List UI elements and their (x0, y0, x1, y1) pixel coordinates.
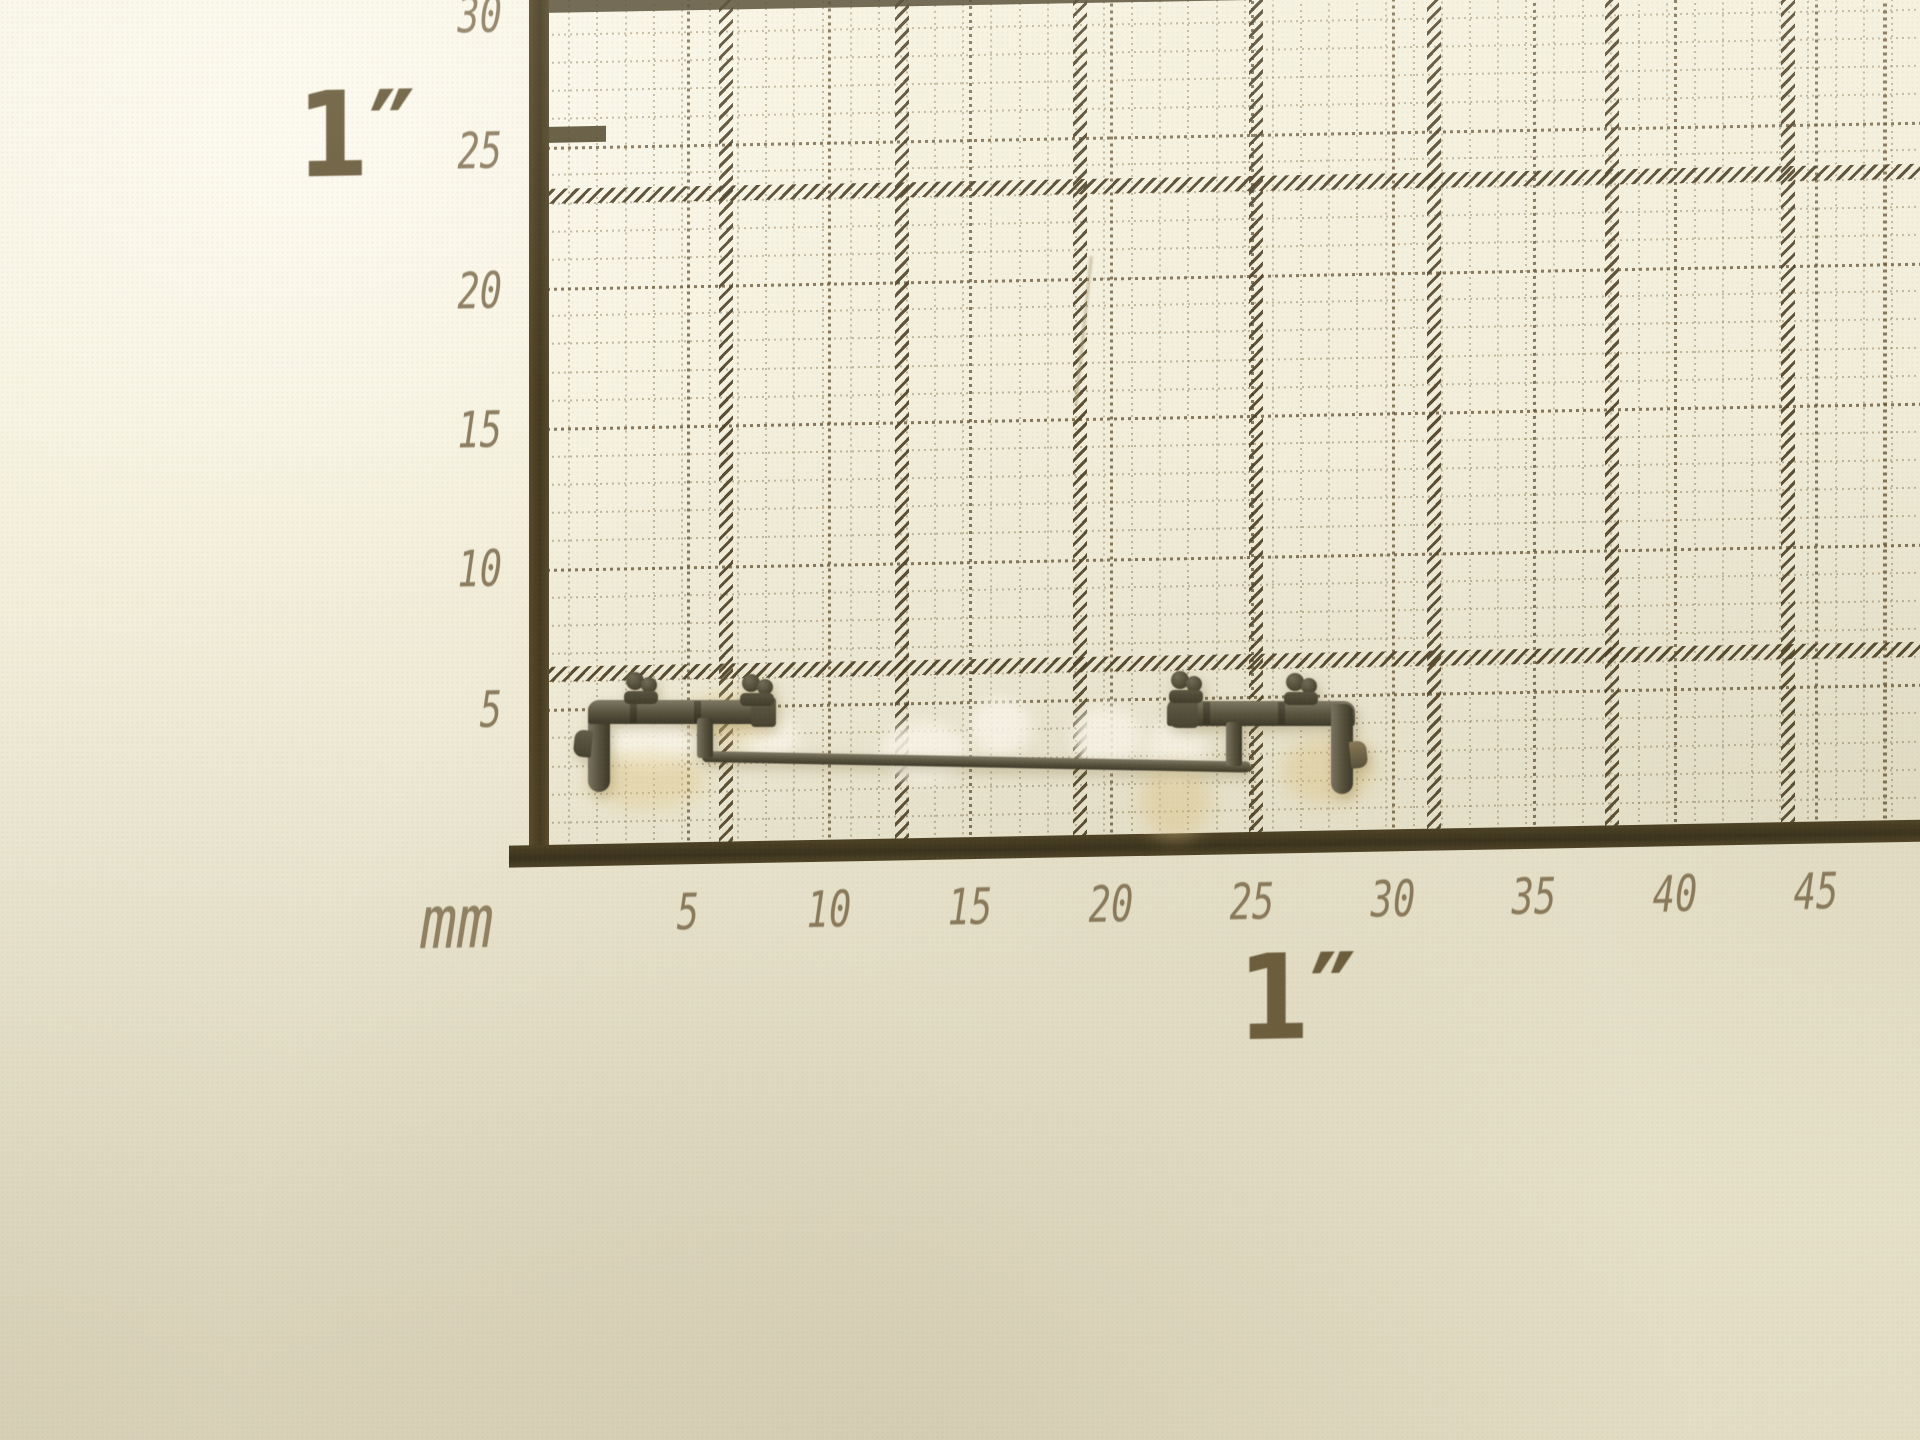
left-post-nub (573, 729, 594, 758)
right-post-nub (1349, 740, 1369, 769)
stanchion-base (1284, 692, 1318, 705)
left-rail-connector (697, 718, 713, 758)
photo-of-part-on-graph-paper: 30252015105 51015202530354045 mm 1″ 1″ (0, 0, 1920, 1440)
bar-ring (630, 701, 637, 723)
stanchion-base (740, 693, 774, 706)
stanchion-base (1169, 690, 1203, 703)
right-rail-connector (1226, 722, 1242, 766)
bar-ring (1278, 702, 1285, 724)
stanchion-base (624, 691, 658, 704)
handrail-part (0, 0, 1920, 1440)
bar-ring (1203, 702, 1210, 724)
handrail-rail (702, 751, 1251, 773)
